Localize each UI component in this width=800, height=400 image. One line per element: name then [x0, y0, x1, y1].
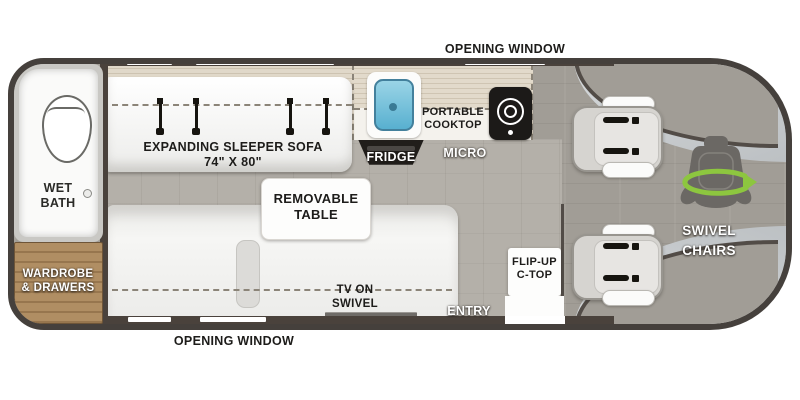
seatbelt-icon: [192, 98, 200, 135]
cooktop-label-line2: COOKTOP: [405, 119, 501, 132]
entry-door-gap: [505, 316, 565, 330]
tv-label: TV ON SWIVEL: [300, 283, 410, 311]
flip-up-label: FLIP-UP C-TOP: [508, 256, 561, 283]
swivel-label-line1: SWIVEL: [649, 221, 769, 241]
opening-window-segment: [465, 60, 545, 65]
wet-bath: WET BATH: [14, 64, 103, 242]
bench-console: [236, 240, 260, 308]
flip-up-label-line1: FLIP-UP: [508, 256, 561, 269]
wardrobe-label-line1: WARDROBE: [15, 267, 101, 281]
seatbelt-icon: [603, 148, 639, 155]
wardrobe-label-line2: & DRAWERS: [15, 281, 101, 295]
wet-bath-label-line2: BATH: [19, 196, 97, 211]
toilet-icon: [42, 95, 92, 163]
burner-inner-ring: [504, 105, 517, 118]
swivel-chairs-label: SWIVEL CHAIRS: [649, 221, 769, 260]
burner-knob: [508, 130, 513, 135]
seat-armrest: [602, 290, 655, 306]
opening-window-segment: [200, 317, 266, 322]
opening-window-segment: [128, 317, 171, 322]
seatbelt-icon: [322, 98, 330, 135]
wet-bath-label: WET BATH: [19, 181, 97, 212]
sofa-label-line1: EXPANDING SLEEPER SOFA: [108, 140, 358, 155]
opening-window-segment: [196, 60, 334, 65]
swivel-label-line2: CHAIRS: [649, 241, 769, 261]
table-label-line2: TABLE: [262, 207, 370, 223]
opening-window-bottom-label: OPENING WINDOW: [154, 334, 314, 349]
swivel-chair-icon: [674, 136, 758, 218]
rv-floorplan: OPENING WINDOW OPENING WINDOW EXPANDING …: [0, 0, 800, 400]
sofa-label-line2: 74" X 80": [108, 155, 358, 170]
seatbelt-icon: [286, 98, 294, 135]
wardrobe-drawers: WARDROBE & DRAWERS: [14, 242, 103, 324]
cooktop-label-line1: PORTABLE: [405, 106, 501, 119]
flip-up-label-line2: C-TOP: [508, 269, 561, 282]
wet-bath-label-line1: WET: [19, 181, 97, 196]
seatbelt-icon: [603, 243, 639, 250]
driver-seat: [570, 94, 665, 180]
bottom-wall-front-segment: [565, 316, 614, 324]
van-body-outline: EXPANDING SLEEPER SOFA 74" X 80" TV ON S…: [8, 58, 792, 330]
seatbelt-icon: [156, 98, 164, 135]
toilet-lid-line: [47, 107, 85, 121]
seatbelt-icon: [603, 117, 639, 124]
tv-label-line1: TV ON: [300, 283, 410, 297]
fridge-label: FRIDGE: [354, 150, 428, 165]
wardrobe-label: WARDROBE & DRAWERS: [15, 267, 101, 295]
seat-armrest: [602, 162, 655, 178]
table-label-line1: REMOVABLE: [262, 191, 370, 207]
entry-label: ENTRY: [434, 304, 504, 319]
shower-pan: WET BATH: [19, 69, 98, 237]
sink-drain-icon: [389, 103, 397, 111]
sofa-fold-line: [112, 104, 352, 106]
flip-up-countertop: FLIP-UP C-TOP: [508, 248, 561, 296]
opening-window-segment: [127, 60, 172, 65]
opening-window-top-label: OPENING WINDOW: [425, 42, 585, 57]
tv-label-line2: SWIVEL: [300, 297, 410, 311]
portable-cooktop-label: PORTABLE COOKTOP: [405, 106, 501, 133]
sofa-label: EXPANDING SLEEPER SOFA 74" X 80": [108, 140, 358, 171]
micro-label: MICRO: [425, 146, 505, 161]
seatbelt-icon: [603, 275, 639, 282]
removable-table: REMOVABLE TABLE: [261, 178, 371, 240]
removable-table-label: REMOVABLE TABLE: [262, 191, 370, 223]
